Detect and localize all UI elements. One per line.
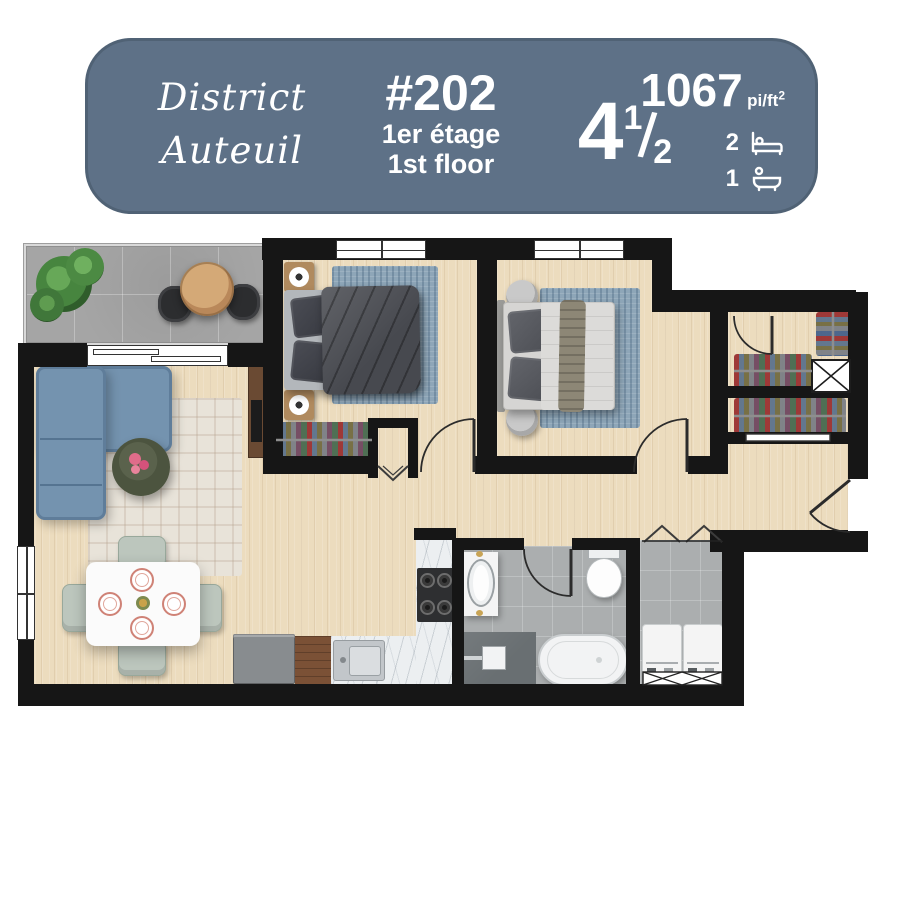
- door-arc: [524, 549, 571, 596]
- bifold-door: [378, 466, 408, 480]
- floor-plan: [0, 0, 900, 900]
- bifold-doors: [378, 466, 722, 542]
- vent-hatch: [643, 672, 722, 685]
- hatch-frame: [643, 672, 722, 685]
- bifold-door: [644, 526, 680, 542]
- entry-door-leaf: [810, 480, 850, 513]
- closet-sliding-door: [746, 434, 830, 441]
- door-arc: [734, 316, 772, 354]
- utility-shaft: [812, 360, 850, 392]
- door-arc: [421, 419, 474, 472]
- entry-door-arc: [810, 513, 850, 532]
- door-arc: [634, 419, 687, 472]
- closet-rails: [276, 312, 846, 440]
- door-arcs: [421, 316, 850, 596]
- floorplan-page: District Auteuil #202 1er étage 1st floo…: [0, 0, 900, 900]
- bifold-door: [686, 526, 722, 542]
- plan-symbols: [0, 0, 900, 900]
